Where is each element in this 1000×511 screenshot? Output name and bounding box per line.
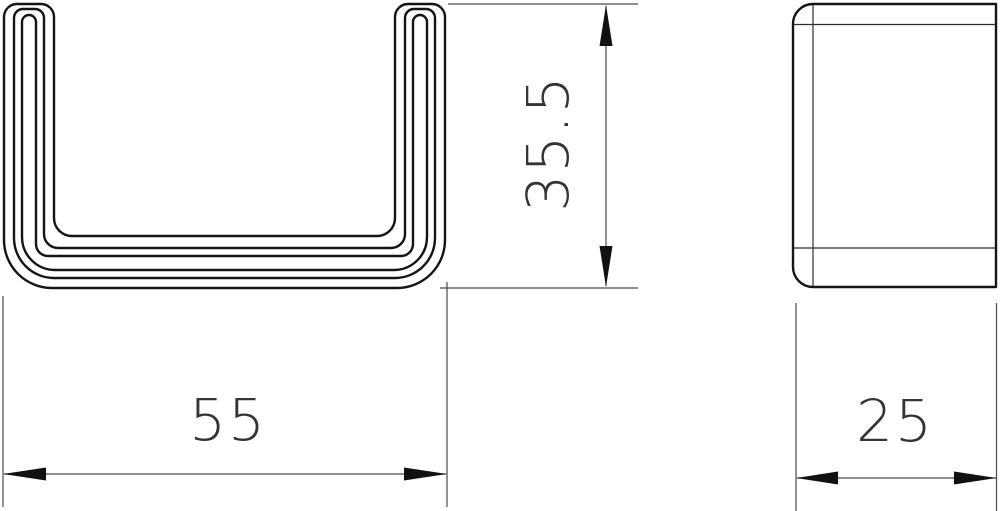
dim-height-arrowhead-up <box>600 5 613 46</box>
u-profile-middle-contour <box>14 9 435 278</box>
side-view <box>793 4 996 287</box>
dim-height-label: 35.5 <box>514 74 582 211</box>
dim-depth-label: 25 <box>856 387 934 455</box>
technical-drawing-canvas: 35.5 55 25 <box>0 0 1000 511</box>
dim-depth-arrowhead-right <box>954 472 997 485</box>
dim-height-arrowhead-down <box>600 246 613 287</box>
technical-drawing-page: 35.5 55 25 <box>0 0 1000 511</box>
front-view-u-profile <box>4 4 445 288</box>
dim-depth-arrowhead-left <box>796 472 838 485</box>
u-profile-inner-contour <box>22 15 427 270</box>
side-view-outline <box>793 4 996 287</box>
dim-width-label: 55 <box>189 386 267 454</box>
dim-width-arrowhead-right <box>404 468 447 481</box>
dimension-width: 55 <box>3 282 447 507</box>
u-profile-outer-contour <box>4 4 445 288</box>
dimension-height: 35.5 <box>440 4 638 288</box>
dim-width-arrowhead-left <box>3 468 46 481</box>
dimension-depth: 25 <box>796 303 997 511</box>
